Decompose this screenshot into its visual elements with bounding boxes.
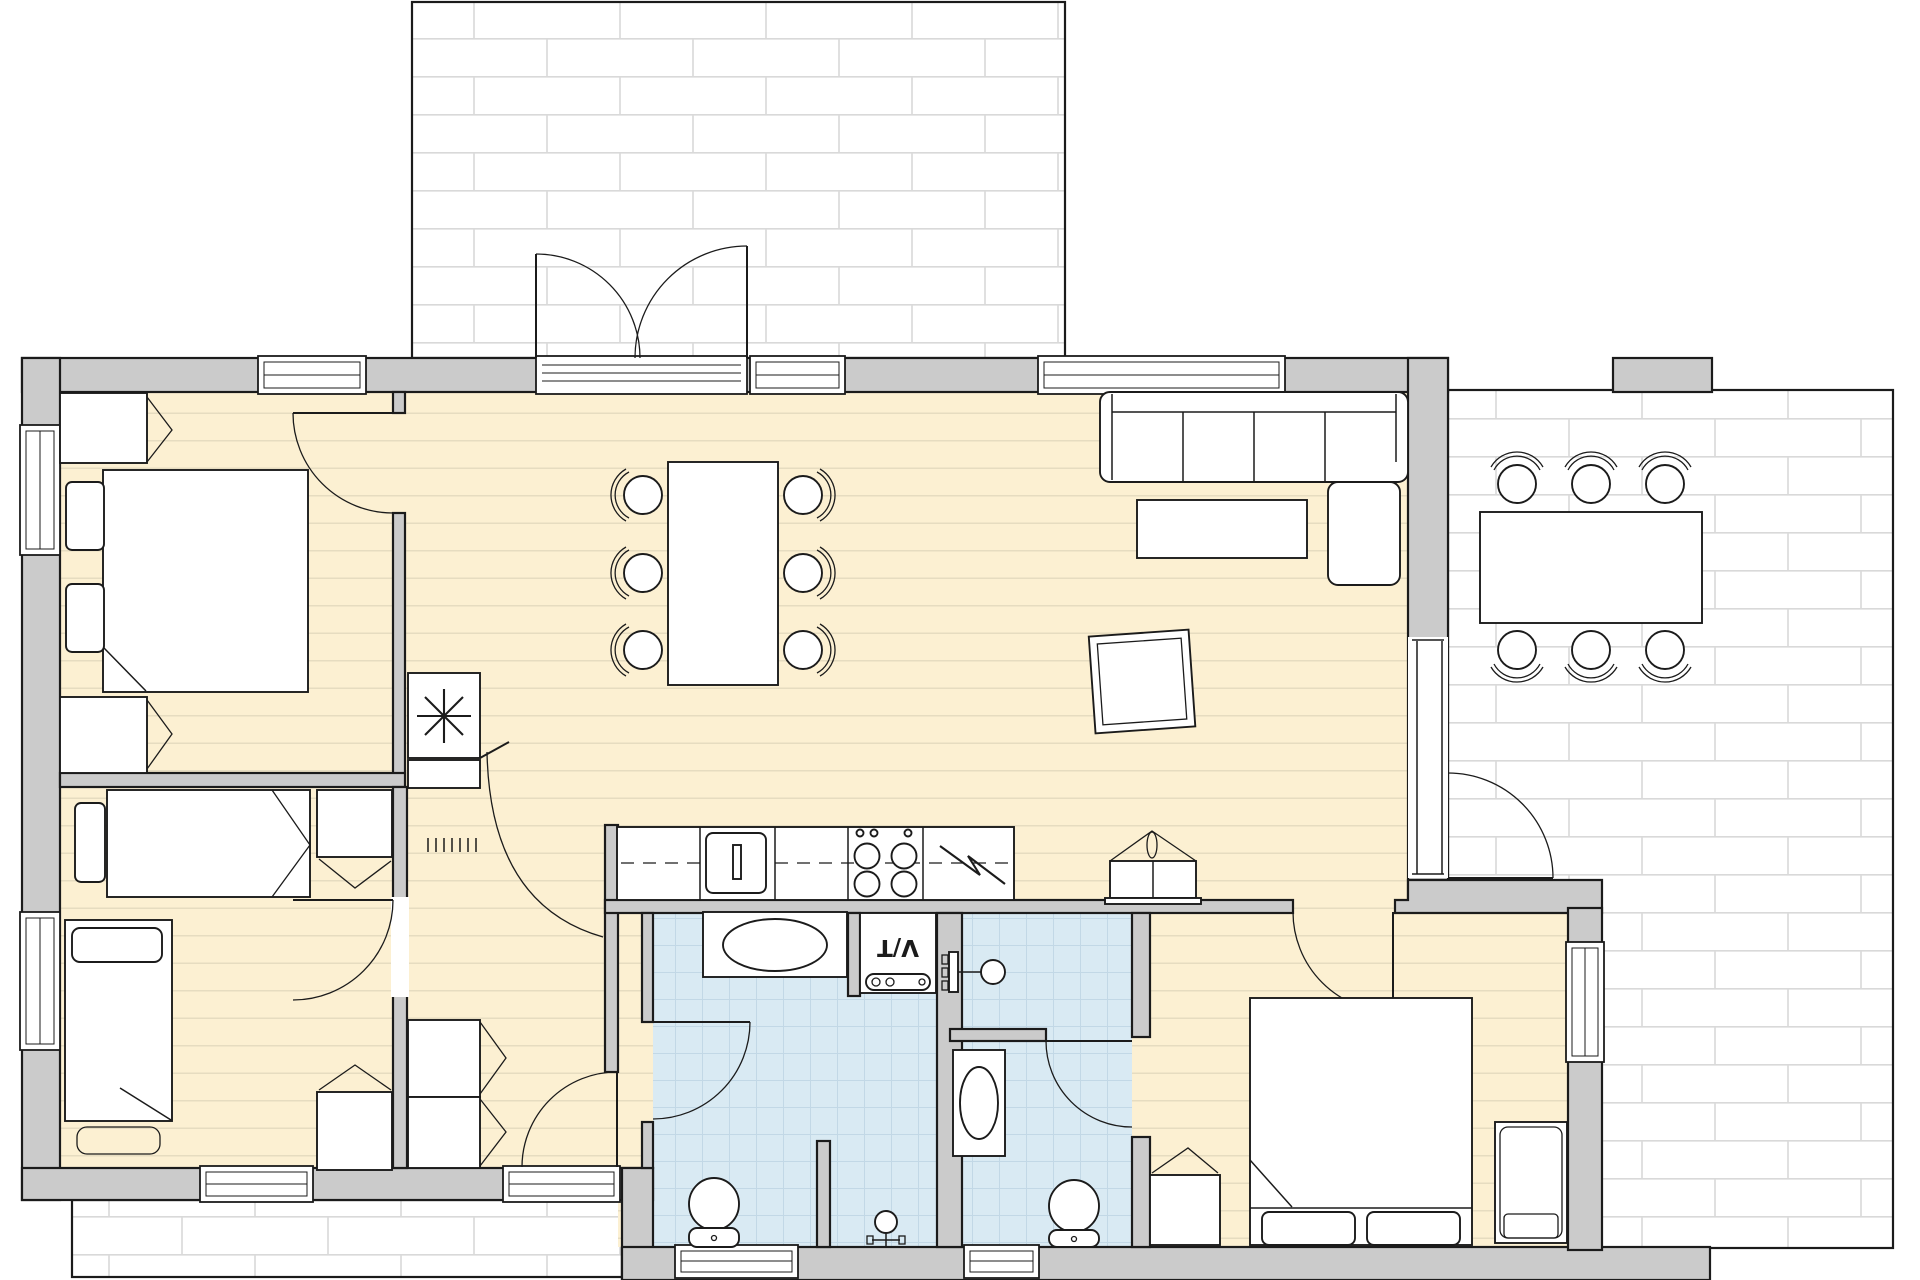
wall-bath1-left-upper <box>642 913 653 1022</box>
french-door-sill <box>536 356 747 394</box>
floor-plan-svg: V/T <box>0 0 1920 1280</box>
nightstand <box>60 697 147 773</box>
window-top-living <box>1038 356 1285 394</box>
dining-table <box>668 462 778 685</box>
rug <box>1089 630 1196 734</box>
wash-basin <box>960 1067 998 1139</box>
pillow <box>1262 1212 1355 1245</box>
kitchen-counter <box>617 827 1014 900</box>
dresser <box>317 790 392 857</box>
window-right-bed3 <box>1566 942 1604 1062</box>
washer-dryer: V/T <box>860 913 936 993</box>
pillow <box>66 584 104 652</box>
window-left-bed1 <box>20 425 60 555</box>
washer-dryer-label: V/T <box>877 934 919 960</box>
nightstand <box>60 393 147 463</box>
dining-set <box>611 462 835 685</box>
closet <box>408 1097 480 1168</box>
wall-bed1-bed2-divider <box>60 773 405 787</box>
outdoor-table <box>1480 512 1702 623</box>
patio-south-west <box>72 1200 622 1277</box>
patio-north <box>412 2 1065 358</box>
closet <box>408 1020 480 1097</box>
wall-bath2-right-upper <box>1132 913 1150 1037</box>
wall-washer-stub <box>848 913 860 996</box>
crib <box>1495 1122 1567 1243</box>
wall-bed1-stub <box>393 392 405 413</box>
window-bottom-hall <box>503 1166 620 1202</box>
wall-bath2-stub <box>950 1029 1046 1041</box>
wall-kitchen-hall <box>605 825 618 1072</box>
window-top-bed1 <box>258 356 366 394</box>
single-bed <box>107 790 310 897</box>
terrace-pillar <box>1613 358 1712 392</box>
bed2-door-opening <box>391 897 409 997</box>
outdoor-dining-set <box>1480 452 1702 682</box>
window-left-bed2 <box>20 912 60 1050</box>
pillow <box>75 803 105 882</box>
double-bed <box>103 470 308 692</box>
pillow <box>66 482 104 550</box>
window-bottom-bath2 <box>964 1245 1039 1278</box>
dresser <box>1150 1175 1220 1245</box>
wall-shower-stub <box>817 1141 830 1247</box>
toilet <box>1049 1180 1099 1247</box>
wall-bed1-right <box>393 513 405 787</box>
desk <box>317 1092 392 1170</box>
wall-bath1-left-lower <box>642 1122 653 1168</box>
kitchen-sink <box>706 833 766 893</box>
pillow <box>72 928 162 962</box>
basin <box>723 919 827 971</box>
window-bottom-bed2 <box>200 1166 313 1202</box>
window-bottom-bath1 <box>675 1245 798 1278</box>
window-top-kitchen <box>750 356 845 394</box>
coffee-table <box>1137 500 1307 558</box>
toilet <box>689 1178 739 1247</box>
wood-stove <box>408 673 480 788</box>
wall-bath2-right-lower <box>1132 1137 1150 1247</box>
pillow <box>1367 1212 1460 1245</box>
